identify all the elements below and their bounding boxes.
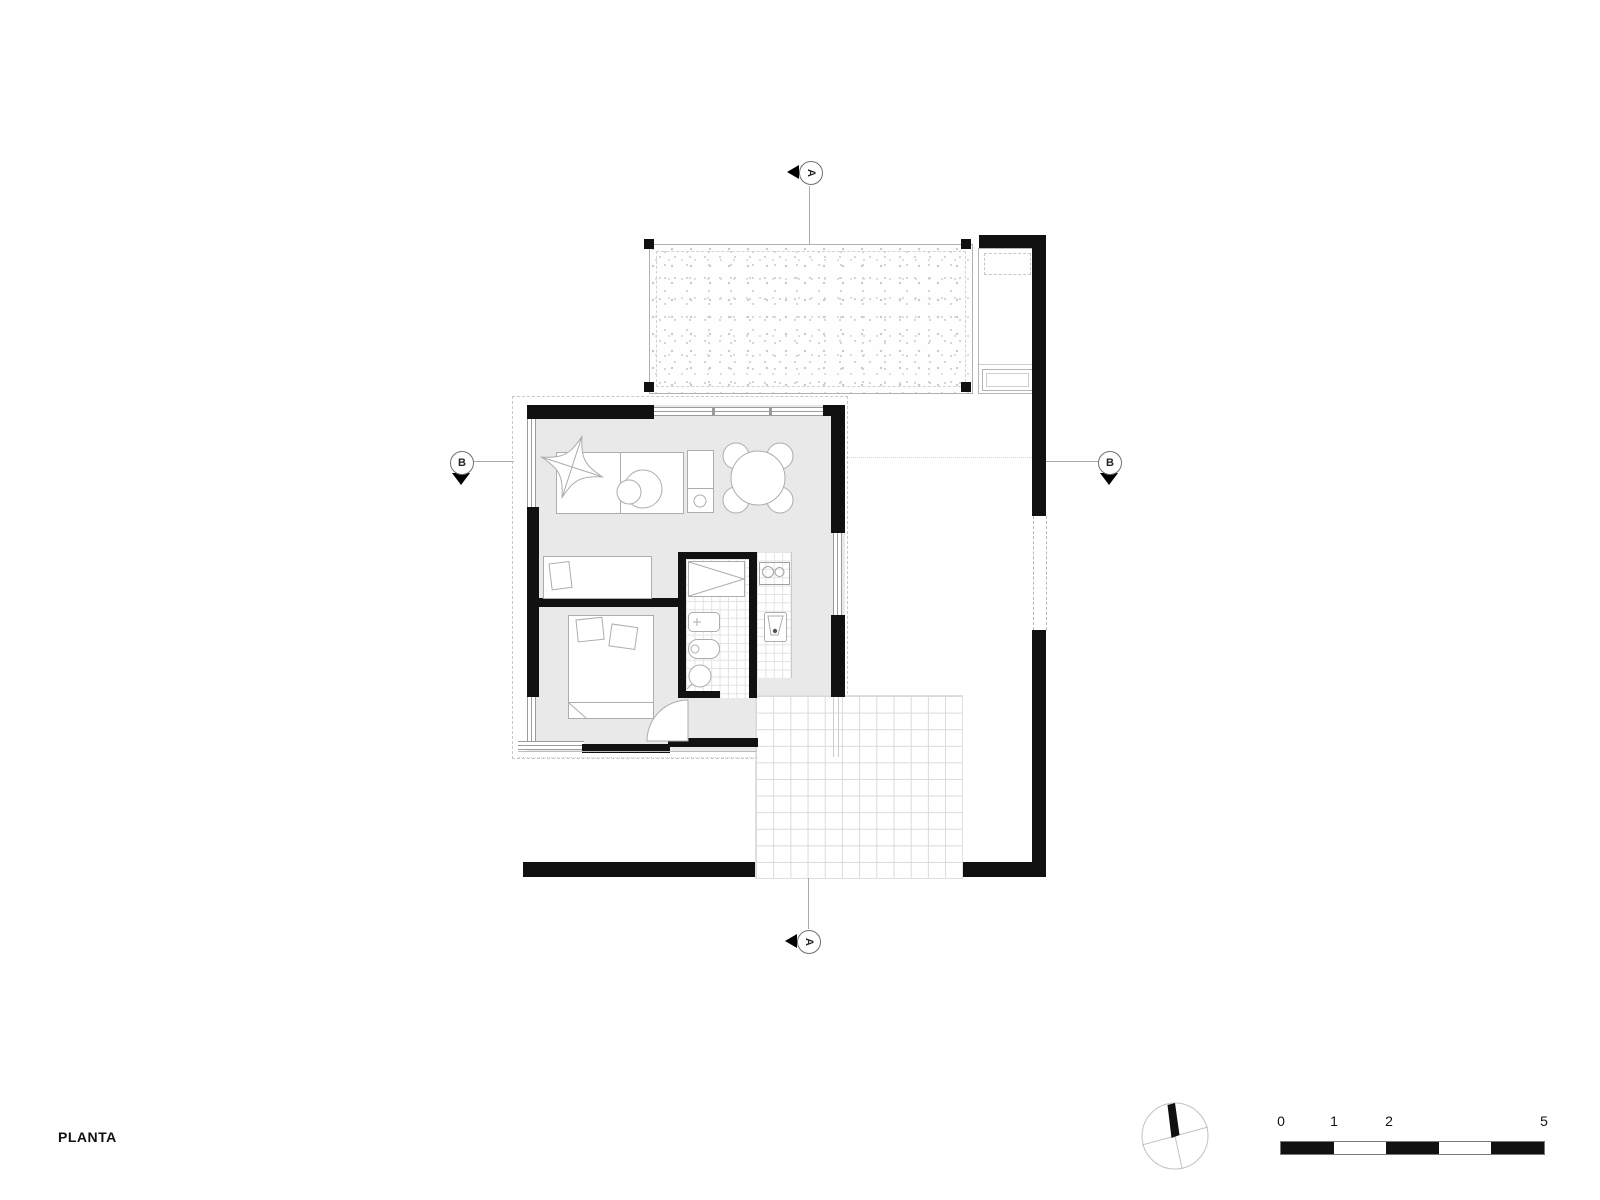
- scale-tick-2: 2: [1385, 1113, 1393, 1129]
- north-arrow-icon: [1142, 1103, 1208, 1169]
- pillow: [549, 562, 572, 590]
- furniture-layer: [0, 0, 1600, 1200]
- double-bed: [569, 616, 654, 719]
- scale-tick-5: 5: [1540, 1113, 1548, 1129]
- pillow: [609, 624, 638, 649]
- scale-tick-0: 0: [1277, 1113, 1285, 1129]
- section-marker-a-top: A: [799, 161, 823, 185]
- scale-tick-1: 1: [1330, 1113, 1338, 1129]
- section-marker-a-bottom: A: [797, 930, 821, 954]
- section-letter: B: [458, 457, 466, 469]
- pillow: [576, 617, 604, 642]
- washbasin: [689, 613, 720, 632]
- floor-plan-canvas: A B B: [0, 0, 1600, 1200]
- scale-bar: [1280, 1141, 1545, 1155]
- scale-segment: [1491, 1142, 1544, 1154]
- scale-segment: [1439, 1142, 1492, 1154]
- cooktop: [760, 563, 790, 585]
- dining-table: [731, 451, 785, 505]
- shower: [689, 562, 745, 597]
- scale-segment: [1334, 1142, 1387, 1154]
- section-marker-b-right: B: [1098, 451, 1122, 475]
- dining-set: [723, 443, 793, 513]
- section-marker-b-left: B: [450, 451, 474, 475]
- section-arrow-a-top-icon: [787, 165, 799, 179]
- round-fixture: [687, 665, 711, 689]
- scale-segment: [1386, 1142, 1439, 1154]
- console-shelf: [688, 451, 714, 513]
- section-letter: B: [1106, 457, 1114, 469]
- single-bed: [544, 557, 652, 599]
- section-line-a-bottom: [808, 878, 809, 929]
- side-table-small: [617, 480, 641, 504]
- kitchen-sink: [765, 613, 787, 642]
- page-title: PLANTA: [58, 1129, 117, 1145]
- section-arrow-a-bottom-icon: [785, 934, 797, 948]
- toilet: [689, 640, 720, 659]
- section-letter: A: [805, 169, 817, 177]
- section-letter: A: [803, 938, 815, 946]
- scale-segment: [1281, 1142, 1334, 1154]
